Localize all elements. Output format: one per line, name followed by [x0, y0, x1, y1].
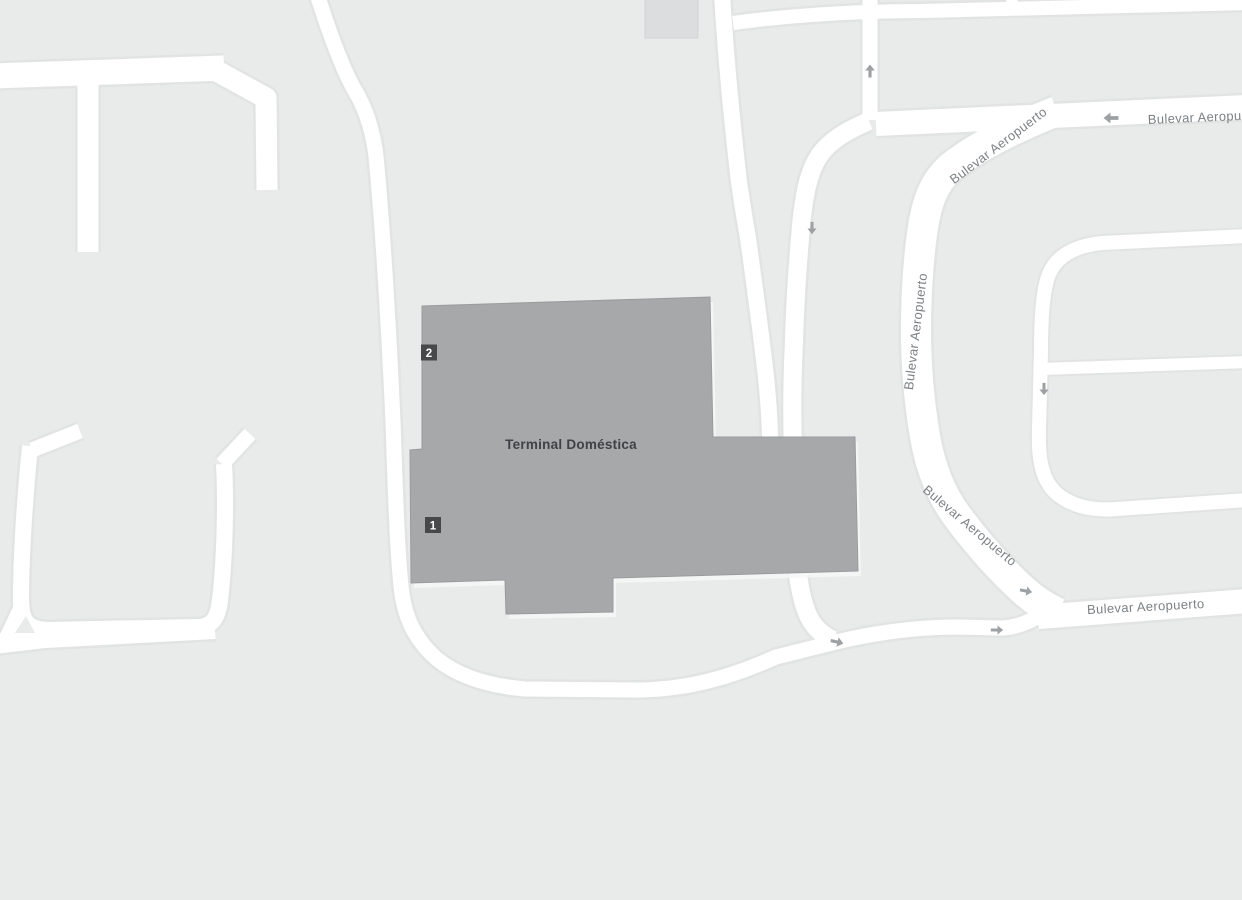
marker-1-number: 1: [430, 520, 437, 532]
marker-2[interactable]: 2: [421, 345, 437, 361]
small-building: [645, 0, 698, 38]
map-canvas[interactable]: Bulevar Aeropuerto Bulevar Aeropuerto Bu…: [0, 0, 1242, 900]
marker-1[interactable]: 1: [425, 517, 441, 533]
building-label[interactable]: Terminal Doméstica: [505, 437, 637, 452]
marker-2-number: 2: [426, 348, 432, 360]
map-svg: Bulevar Aeropuerto Bulevar Aeropuerto Bu…: [0, 0, 1242, 900]
